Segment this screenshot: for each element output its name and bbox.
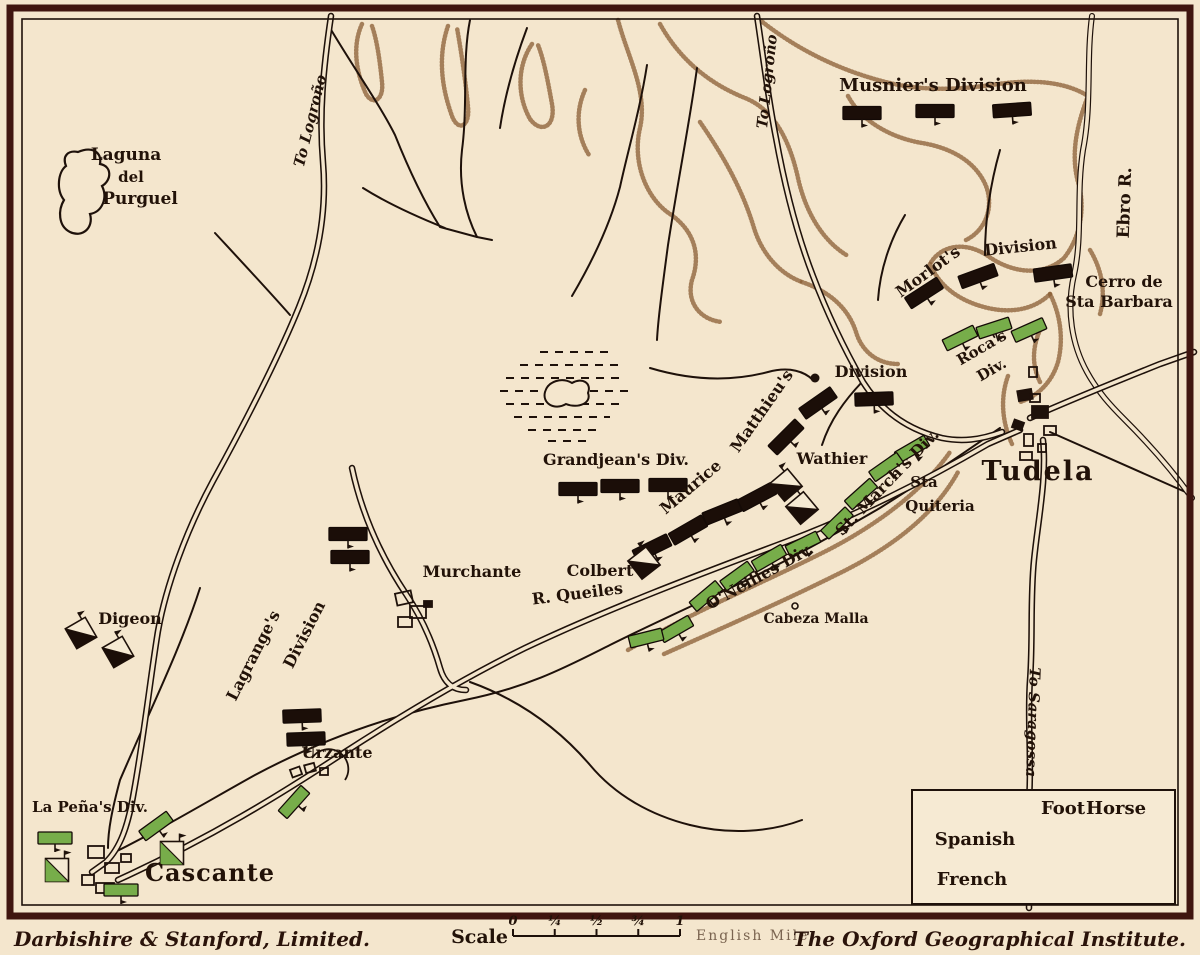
map-label: Cerro de — [1085, 272, 1162, 291]
map-label: Colbert — [567, 561, 634, 580]
legend-row-french: French — [937, 869, 1008, 890]
map-label: Digeon — [98, 609, 162, 628]
map-label: Grandjean's Div. — [543, 450, 689, 469]
map-label: Laguna — [91, 145, 162, 165]
map-label: Urzante — [301, 743, 372, 762]
map-label: Ebro R. — [1114, 167, 1136, 239]
map-label: Murchante — [423, 562, 522, 581]
marsh-pond — [545, 380, 589, 406]
scale-tick-label: ¼ — [548, 914, 562, 929]
map-label: La Peña's Div. — [32, 798, 148, 816]
map-label: Sta Barbara — [1065, 292, 1173, 311]
legend-box: Foot Horse Spanish French — [912, 790, 1175, 904]
map-label: Wathier — [796, 449, 868, 468]
scale-label: Scale — [451, 926, 508, 948]
credit-institute: The Oxford Geographical Institute. — [793, 927, 1186, 951]
map-label: To Saragossa — [1022, 667, 1044, 778]
credit-publisher: Darbishire & Stanford, Limited. — [13, 927, 370, 951]
legend-header-foot: Foot — [1041, 798, 1086, 819]
legend-row-spanish: Spanish — [935, 829, 1015, 850]
map-label: Division — [835, 362, 908, 381]
legend-header-horse: Horse — [1086, 798, 1146, 819]
map-label: Sta — [910, 473, 938, 491]
map-label: Cabeza Malla — [763, 611, 868, 627]
map-label: Musnier's Division — [839, 75, 1027, 96]
map-label: Cascante — [145, 858, 275, 887]
scale-tick-label: ¾ — [631, 914, 645, 929]
map-label: del — [118, 168, 144, 186]
village-dot — [811, 374, 820, 383]
map-label: Tudela — [981, 456, 1094, 487]
scale-tick-label: ½ — [590, 914, 604, 929]
map-label: Quiteria — [905, 497, 975, 515]
map-label: Purguel — [102, 189, 178, 209]
battle-of-tudela-map: LagunadelPurguelTo LogroñoTo LogroñoMusn… — [0, 0, 1200, 955]
scale-tick-label: 0 — [508, 914, 517, 929]
scale-tick-label: 1 — [675, 914, 684, 929]
